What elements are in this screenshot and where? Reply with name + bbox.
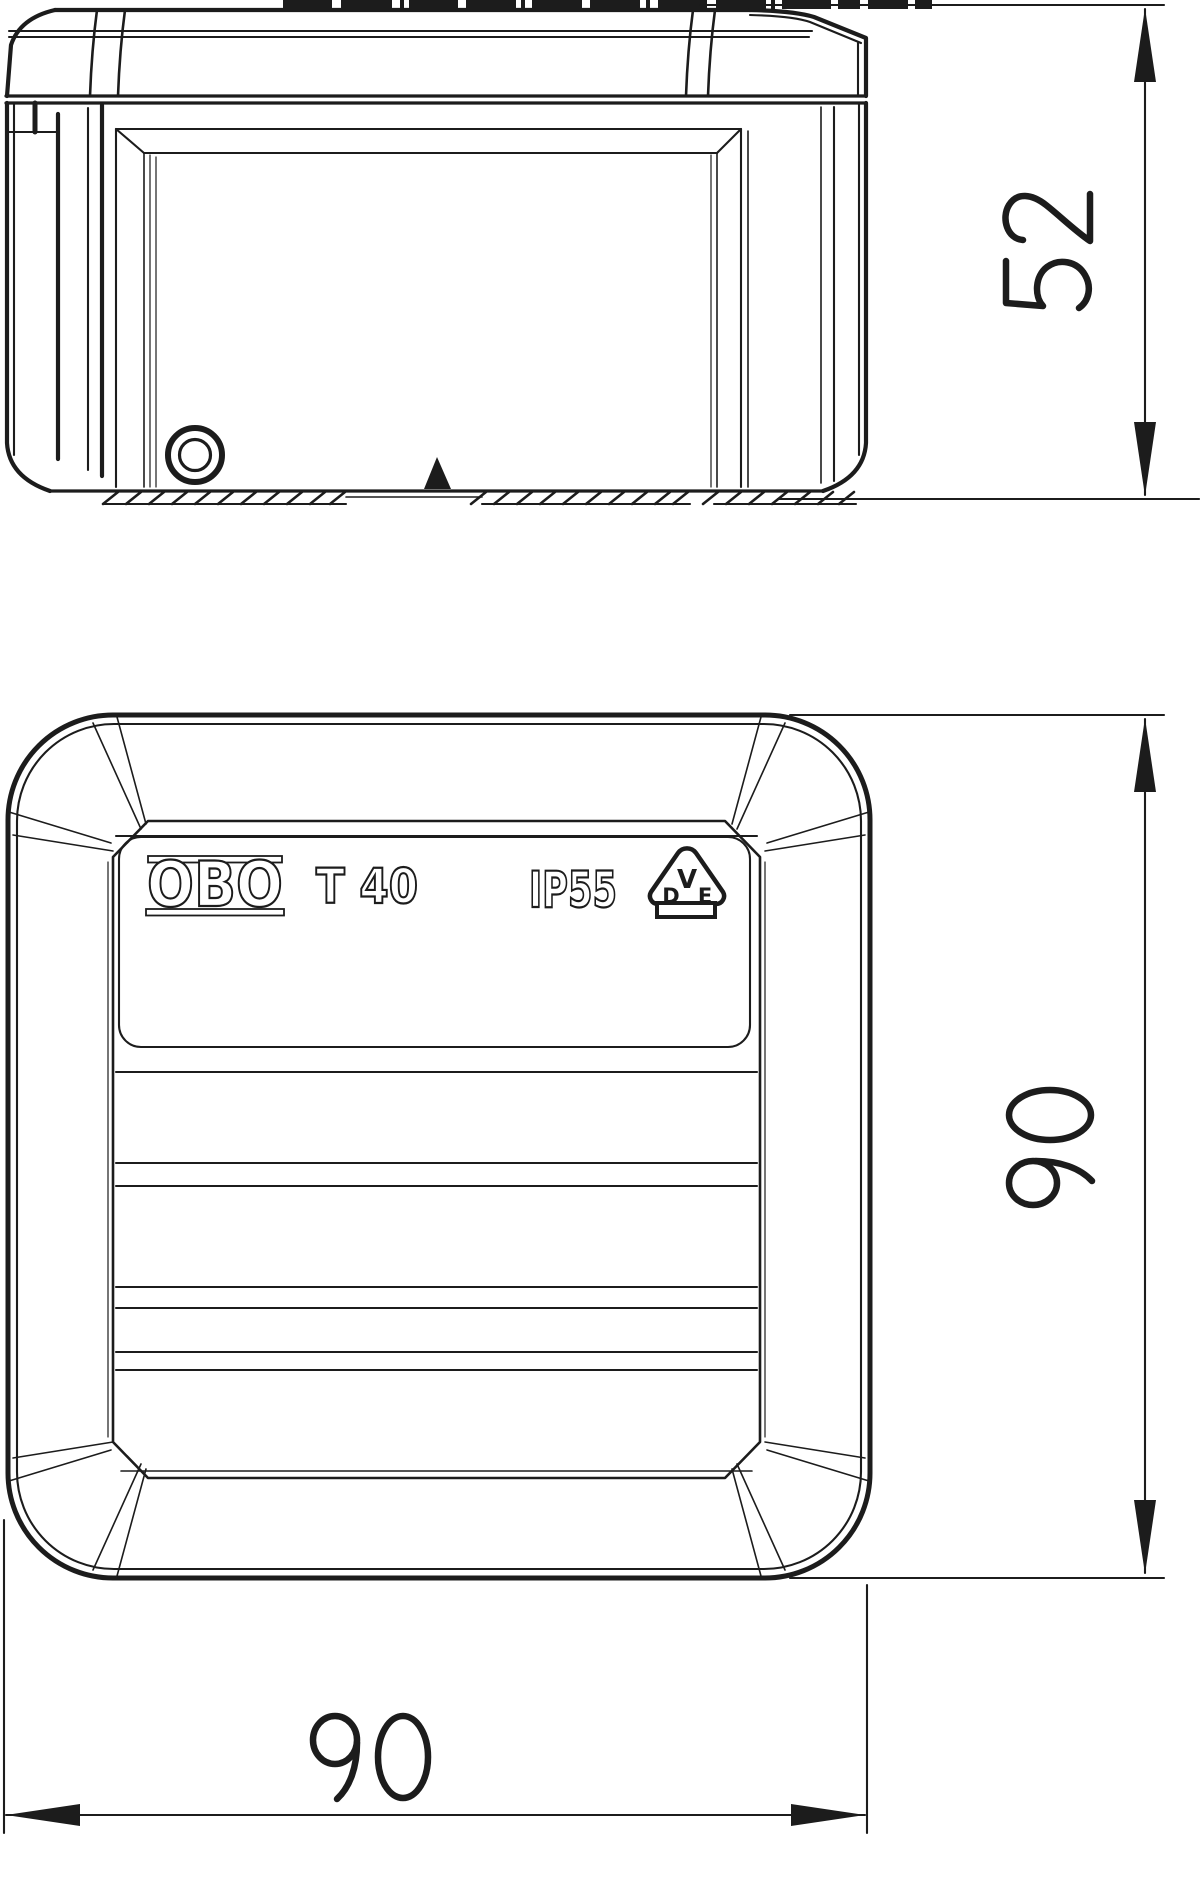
technical-drawing: OBO T 40 IP55 V D E [0, 0, 1200, 1877]
model-label: T 40 [316, 859, 418, 915]
obo-logo: OBO [146, 848, 284, 921]
ip-rating-label: IP55 [529, 861, 617, 919]
vde-letter-v: V [677, 865, 697, 895]
technical-drawing-page: OBO T 40 IP55 V D E [0, 0, 1200, 1877]
vde-letter-e: E [698, 884, 712, 908]
drawing-background [0, 0, 1200, 1877]
obo-logo-underbar [146, 909, 284, 916]
vde-letter-d: D [662, 884, 679, 908]
